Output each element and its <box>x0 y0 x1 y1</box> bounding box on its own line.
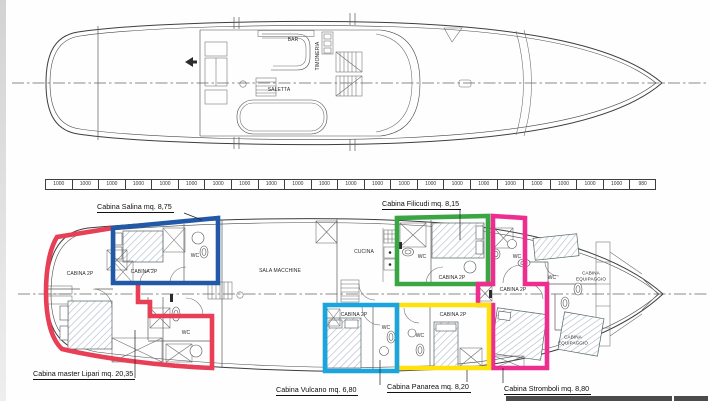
room-label-wc: WC <box>191 253 200 259</box>
room-label-cabina-2p: CABINA 2P <box>440 312 467 318</box>
bottom-bar-notch <box>672 396 674 401</box>
saletta-sofa-inner <box>240 103 324 131</box>
cabin-label-salina[interactable]: Cabina Salina mq. 8,75 <box>97 202 174 213</box>
room-label-wc: WC <box>513 254 522 260</box>
scale-bar-segment: 1000 <box>285 180 312 189</box>
room-label-cabina-2p: CABINA 2P <box>341 312 368 318</box>
deck-hatch <box>459 80 471 87</box>
room-label-wc: WC <box>382 325 391 331</box>
room-label-bar: BAR <box>288 37 299 43</box>
bar-counter-inner <box>262 38 306 66</box>
scale-bar-segment: 1000 <box>391 180 418 189</box>
room-label-cabina-2p: CABINA 2P <box>131 269 158 275</box>
cabin-label-vulcano[interactable]: Cabina Vulcano mq. 6,80 <box>276 385 358 396</box>
room-label-wc: WC <box>182 330 191 336</box>
bed-crew-fwd <box>533 234 579 260</box>
room-label-sala-macchine: SALA MACCHINE <box>257 268 303 274</box>
room-label-timoneria: TIMONERIA <box>315 42 321 71</box>
scale-bar-segment: 1000 <box>259 180 286 189</box>
room-label-cabina-2p: CABINA 2P <box>67 271 94 277</box>
scale-bar-segment: 1000 <box>73 180 100 189</box>
scale-bar-segment: 1000 <box>179 180 206 189</box>
centerline-marker <box>240 81 246 87</box>
north-arrow-icon <box>185 57 197 67</box>
scale-bar-segment: 1000 <box>46 180 73 189</box>
scale-bar-segment: 1000 <box>471 180 498 189</box>
scale-bar-segment: 1000 <box>418 180 445 189</box>
room-label-cabina-equipaggio: CABINA EQUIPAGGIO <box>573 271 609 282</box>
lower-deck-plan <box>18 219 708 372</box>
scale-bar-segment: 1000 <box>312 180 339 189</box>
scale-bar-segment: 1000 <box>498 180 525 189</box>
cabin-label-lipari[interactable]: Cabina master Lipari mq. 20,35 <box>33 369 135 380</box>
scale-bar-segment: 1000 <box>524 180 551 189</box>
room-label-wc: WC <box>416 333 425 339</box>
bed-master-lipari <box>60 301 112 349</box>
cabinets <box>205 42 227 104</box>
stairs-icon <box>341 280 359 302</box>
cabin-label-stromboli[interactable]: Cabina Stromboli mq. 8,80 <box>504 384 591 395</box>
bed-panarea <box>434 322 458 368</box>
scale-bar-segment: 1000 <box>365 180 392 189</box>
scale-bar-segment: 1000 <box>577 180 604 189</box>
scale-bar-segment: 1000 <box>205 180 232 189</box>
settee <box>258 31 314 37</box>
scale-bar: 1000100010001000100010001000100010001000… <box>45 179 656 190</box>
stairs-icon <box>336 76 362 96</box>
helm-console <box>322 32 333 54</box>
scale-bar-segment: 1000 <box>232 180 259 189</box>
room-label-cucina: CUCINA <box>354 249 374 255</box>
upper-deck-plan <box>12 13 706 151</box>
bed-vulcano <box>327 318 361 368</box>
scale-bar-segment: 1000 <box>551 180 578 189</box>
scale-bar-segment: 1000 <box>444 180 471 189</box>
room-label-cabina-equipaggio: CABINA EQUIPAGGIO <box>555 335 591 346</box>
bed-stromboli <box>491 308 547 361</box>
bed-filicudi <box>432 223 484 258</box>
bed-salina <box>115 231 163 262</box>
blueprint-drawing <box>0 0 710 401</box>
centerline-marker <box>237 292 243 298</box>
scale-bar-segment: 1000 <box>99 180 126 189</box>
room-label-wc: WC <box>548 275 557 281</box>
room-label-cabina-2p: CABINA 2P <box>439 275 466 281</box>
stairs-icon <box>336 52 362 72</box>
stern-step <box>46 286 72 294</box>
saletta-sofa <box>237 100 327 134</box>
yacht-deck-plan-canvas: BAR TIMONERIA SALETTA CABINA 2P CABINA 2… <box>0 0 710 401</box>
room-label-saletta: SALETTA <box>268 87 291 93</box>
hull-inner-line-upper <box>50 25 656 139</box>
scale-bar-segment: 980 <box>630 180 655 189</box>
bottom-partial-bar <box>506 396 708 401</box>
scale-bar-segment: 1000 <box>152 180 179 189</box>
cabin-label-filicudi[interactable]: Cabina Filicudi mq. 8,15 <box>382 199 461 210</box>
bar-counter <box>262 34 310 70</box>
scale-bar-segment: 1000 <box>338 180 365 189</box>
scale-bar-segment: 1000 <box>126 180 153 189</box>
scale-bar-segment: 1000 <box>604 180 631 189</box>
cabin-label-panarea[interactable]: Cabina Panarea mq. 8,20 <box>387 382 471 393</box>
room-label-wc: WC <box>418 254 427 260</box>
room-label-cabina-2p: CABINA 2P <box>500 287 527 293</box>
